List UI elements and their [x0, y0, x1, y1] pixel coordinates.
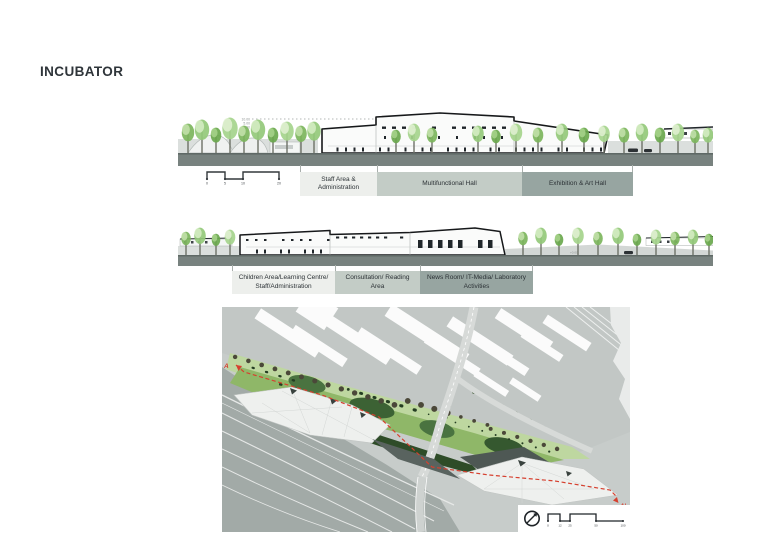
zone-label-news-room: News Room/ IT-Media/ Laboratory Activiti… [420, 271, 533, 294]
level-note: +0.00 [570, 250, 578, 254]
zone-label-staff-admin: Staff Area & Administration [300, 172, 377, 196]
page-title: INCUBATOR [40, 64, 123, 79]
elevation-bottom-drawing: +0.00 [178, 222, 713, 270]
building-outline-bottom [240, 228, 505, 255]
plan-legend: 0 12 25 50 100 [518, 505, 630, 532]
svg-text:5: 5 [224, 182, 226, 186]
ground-band [178, 255, 713, 266]
svg-text:0: 0 [206, 182, 208, 186]
section-marker-a: A [223, 363, 229, 370]
leader-line [522, 165, 523, 172]
svg-text:100: 100 [620, 524, 625, 528]
leader-line [632, 165, 633, 172]
svg-text:12: 12 [558, 524, 562, 528]
svg-text:20: 20 [277, 182, 281, 186]
zone-label-children-area: Children Area/Learning Centre/ Staff/Adm… [232, 271, 335, 294]
presentation-sheet: INCUBATOR 10.00 5.00 0.00 [0, 0, 780, 552]
leader-line [300, 165, 301, 172]
embankment [505, 245, 713, 256]
site-plan: A A' 0 12 25 50 100 [222, 307, 630, 532]
svg-text:25: 25 [568, 524, 572, 528]
elevation-top-drawing: 10.00 5.00 0.00 [178, 96, 713, 166]
leader-line [377, 165, 378, 172]
svg-text:10: 10 [241, 182, 245, 186]
zone-label-consultation: Consultation/ Reading Area [335, 271, 420, 294]
scale-bar-elevation: 0 5 10 20 [203, 168, 285, 190]
svg-text:50: 50 [594, 524, 598, 528]
zone-label-exhibition: Exhibition & Art Hall [522, 172, 633, 196]
zone-label-multifunctional: Multifunctional Hall [377, 172, 522, 196]
